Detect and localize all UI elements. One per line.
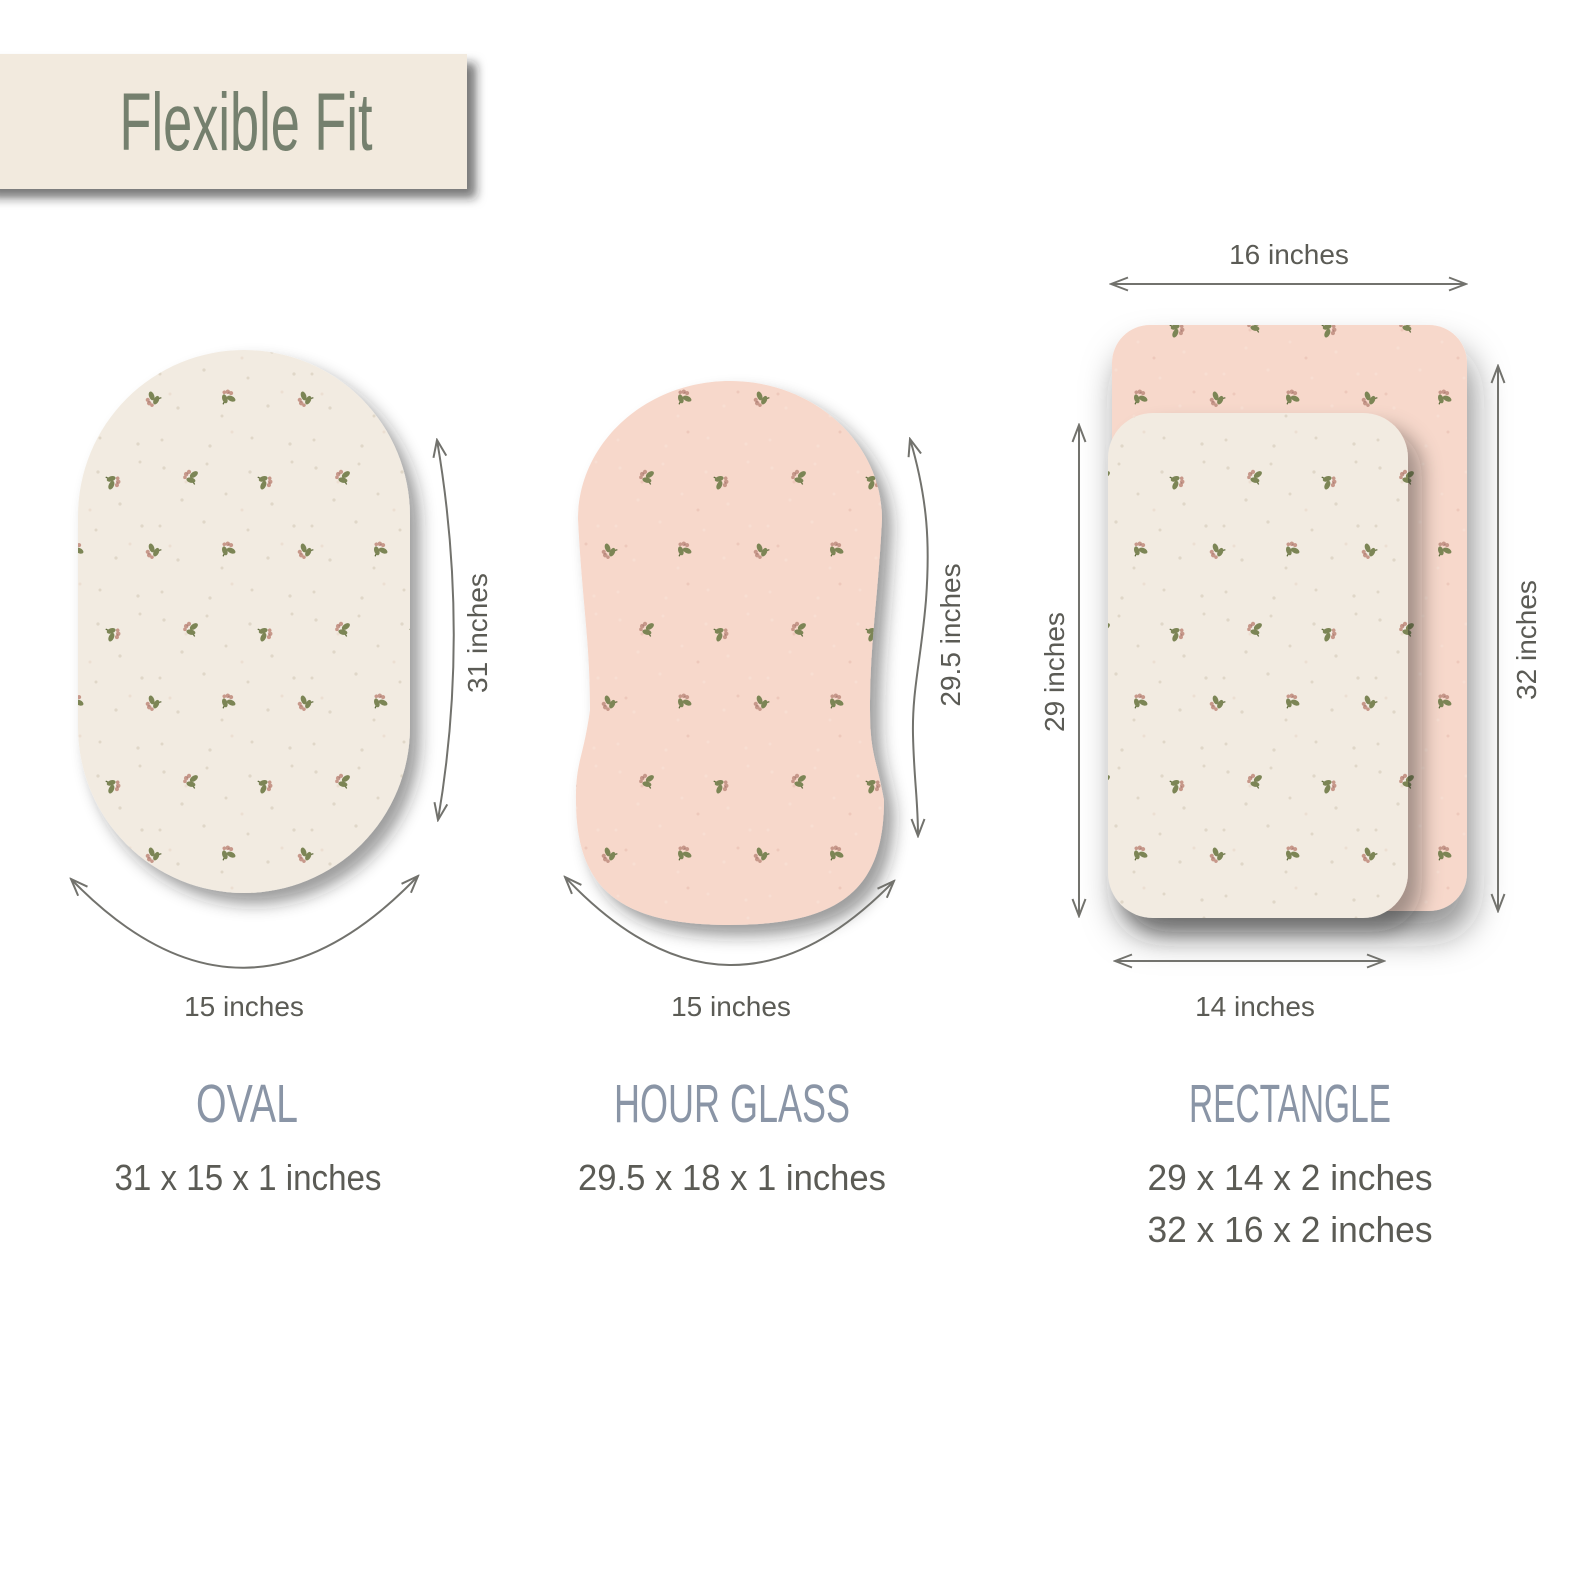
svg-text:29.5 x 18 x 1 inches: 29.5 x 18 x 1 inches [578, 1157, 886, 1198]
svg-text:14 inches: 14 inches [1195, 991, 1315, 1022]
svg-text:32 x 16 x 2 inches: 32 x 16 x 2 inches [1148, 1209, 1433, 1250]
svg-text:29 x 14 x 2 inches: 29 x 14 x 2 inches [1148, 1157, 1433, 1198]
svg-text:OVAL: OVAL [196, 1074, 298, 1134]
svg-text:29 inches: 29 inches [1039, 612, 1070, 732]
svg-text:32 inches: 32 inches [1511, 580, 1542, 700]
svg-text:31 x 15 x 1 inches: 31 x 15 x 1 inches [115, 1157, 382, 1198]
svg-text:RECTANGLE: RECTANGLE [1189, 1074, 1391, 1134]
svg-text:15 inches: 15 inches [671, 991, 791, 1022]
svg-text:31 inches: 31 inches [462, 573, 493, 693]
svg-text:HOUR GLASS: HOUR GLASS [614, 1074, 850, 1134]
svg-text:29.5 inches: 29.5 inches [935, 563, 966, 706]
svg-text:Flexible Fit: Flexible Fit [120, 77, 373, 168]
svg-text:16 inches: 16 inches [1229, 239, 1349, 270]
svg-text:15 inches: 15 inches [184, 991, 304, 1022]
